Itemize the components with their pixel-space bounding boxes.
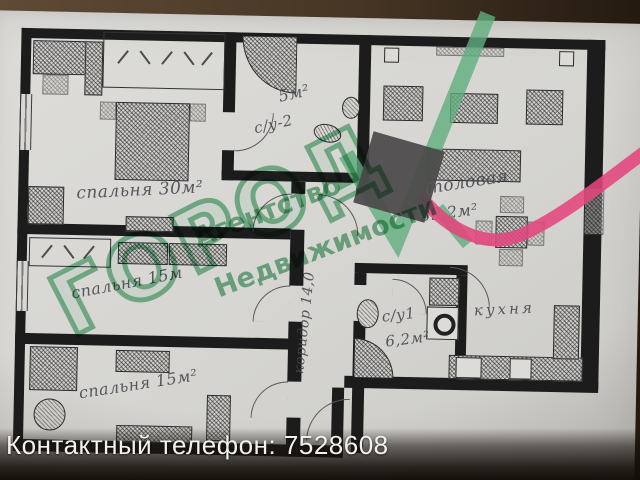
window (16, 261, 29, 311)
label-bathroom-lower-area: 6,2м² (384, 327, 431, 350)
furniture-armchair (383, 85, 424, 121)
window (19, 94, 32, 150)
label-kitchen: кухня (473, 299, 535, 320)
closet-nook (102, 32, 225, 91)
furniture-armchair (526, 89, 564, 125)
furniture-shelf (436, 47, 504, 57)
furniture-round-table (33, 398, 66, 431)
furniture-chair (500, 196, 524, 213)
window (583, 188, 604, 235)
hanger-mark (201, 52, 213, 66)
furniture-chair (499, 249, 523, 266)
furniture-cabinet (429, 277, 460, 306)
furniture-bed (114, 102, 190, 182)
washer-drum (433, 314, 455, 336)
column (384, 47, 399, 62)
fixture-washing-machine (426, 306, 459, 340)
furniture-dining-table (495, 216, 528, 249)
furniture-wardrobe (84, 41, 103, 95)
furniture-cabinet (28, 186, 65, 225)
fixture-sink (356, 299, 379, 328)
caption-bar: Контактный телефон: 7528608 (0, 428, 640, 480)
furniture-chair (475, 220, 492, 244)
furniture-dresser (33, 40, 88, 75)
column (559, 51, 574, 66)
hanger-mark (117, 50, 129, 64)
furniture-nightstand (100, 102, 116, 120)
furniture-chair (527, 222, 544, 246)
hanger-mark (41, 245, 53, 259)
appliance (509, 358, 531, 379)
hanger-mark (139, 50, 150, 64)
furniture-armchair (29, 346, 78, 391)
door-arc (253, 285, 291, 323)
appliance (455, 357, 481, 379)
hanger-mark (161, 51, 173, 65)
hanger-mark (183, 51, 194, 65)
photo-background: спальня 30м² 5м² с/у-2 столовая 39,2м² (0, 0, 640, 480)
caption-text: Контактный телефон: 7528608 (6, 430, 389, 461)
label-bathroom-lower-name: с/у1 (381, 304, 417, 326)
door-arc (251, 381, 289, 419)
wall-segment (354, 273, 366, 285)
furniture-kitchen-counter (553, 305, 580, 360)
furniture-sofa (450, 93, 499, 124)
furniture-chair (42, 74, 68, 95)
furniture-nightstand (190, 103, 206, 121)
